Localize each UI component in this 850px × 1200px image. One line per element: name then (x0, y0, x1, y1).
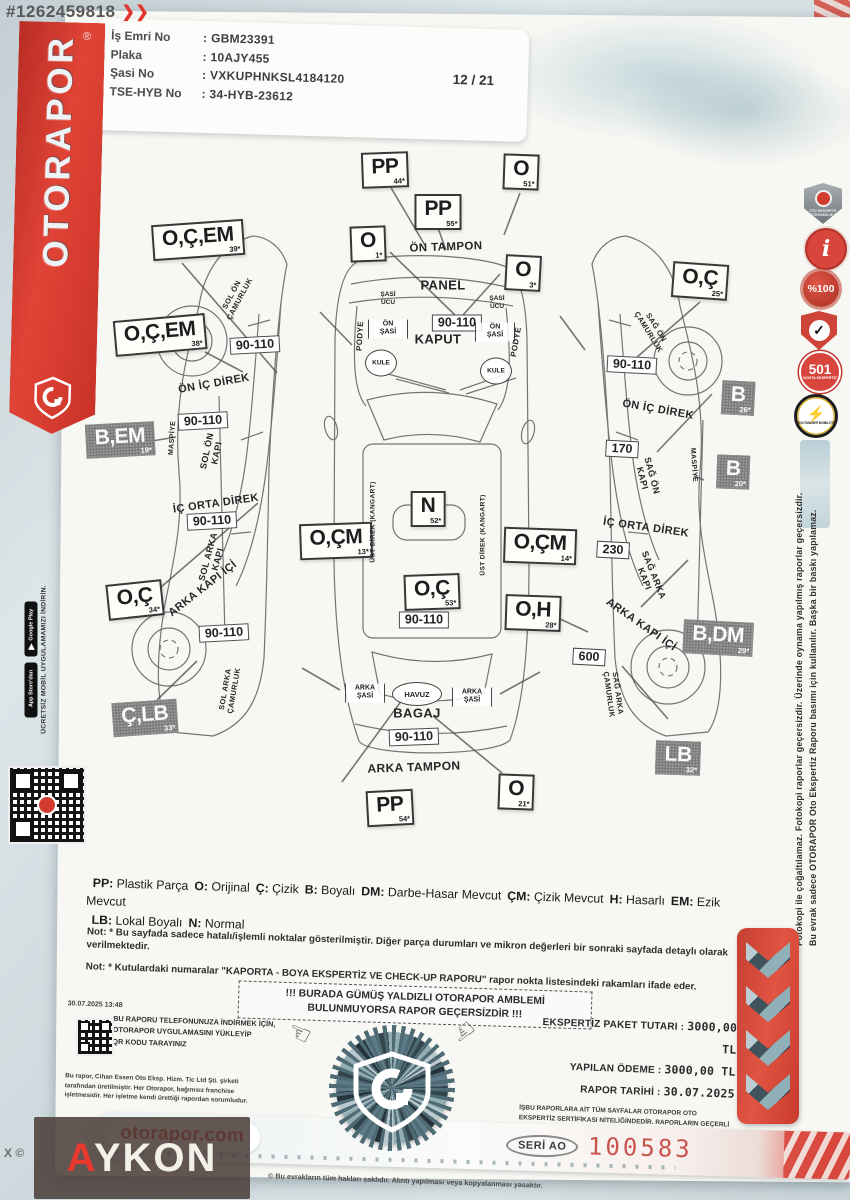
hologram-seal (336, 1032, 448, 1144)
shield-logo-icon (32, 375, 73, 420)
serial-label-stamp: SERİ AO (506, 1134, 579, 1158)
aykon-watermark: AYKON (34, 1117, 250, 1199)
brand-logo-text: OTORAPOR (36, 34, 82, 269)
side-disclaimer-line-1: Bu evrak sadece OTORAPOR Oto Ekspertiz R… (806, 398, 820, 946)
footer-red-stripes (783, 1131, 850, 1180)
download-instructions: BU RAPORU TELEFONUNUZA İNDİRMEK İÇİN,OTO… (112, 1013, 282, 1053)
page-number: 12 / 21 (453, 72, 495, 88)
payment-row: EKSPERTİZ PAKET TUTARI : 3000,00 TL (521, 1010, 737, 1061)
otorapor-logo-icon (815, 190, 832, 207)
check-icon: ✓ (809, 320, 830, 341)
side-disclaimer: Fotokopi ile çoğaltılamaz. Fotokopi rapo… (792, 398, 820, 946)
app-promo-caption: ÜCRETSİZ MOBİL UYGULAMAMIZI İNDİRİN. (41, 558, 48, 762)
lightning-icon: ⚡ (807, 407, 826, 422)
info-badge: i (805, 228, 847, 270)
voltmaner-badge: ⚡ VOLTMANER MOBILITY (794, 394, 838, 438)
chevron-ribbon (737, 928, 799, 1124)
listing-watermark-id: #1262459818❯❯ (6, 2, 149, 22)
app-store-badge: App Store'dan (25, 663, 38, 717)
mobile-app-promo: App Store'dan ▶Google Play ÜCRETSİZ MOBİ… (25, 558, 48, 762)
play-icon: ▶ (27, 644, 36, 650)
corner-copyright-mark: X © (4, 1146, 24, 1160)
501-nokta-badge: 501NOKTA EKSPERTİZ (799, 351, 841, 393)
registered-mark: ® (83, 31, 91, 43)
header-fields: İş Emri No: GBM23391Plaka: 10AJY455Şasi … (109, 26, 515, 112)
qr-logo (37, 795, 57, 815)
google-play-badge: ▶Google Play (25, 602, 38, 657)
leader-lines (152, 186, 712, 782)
serial-number: 100583 (588, 1132, 693, 1163)
scanned-report-page: #1262459818❯❯ ® OTORAPOR İş Emri No: GBM… (0, 0, 850, 1200)
chevron-down-icon (746, 1074, 790, 1110)
app-qr-code (8, 766, 86, 844)
chevrons-icon: ❯❯ (122, 4, 150, 21)
chevron-down-icon (746, 1030, 790, 1066)
side-disclaimer-line-2: Fotokopi ile çoğaltılamaz. Fotokopi rapo… (792, 398, 806, 946)
chevron-down-icon (746, 942, 790, 978)
report-qr-code (76, 1018, 114, 1056)
chevron-down-icon (746, 986, 790, 1022)
payment-rows: EKSPERTİZ PAKET TUTARI : 3000,00 TLYAPIL… (520, 1010, 738, 1105)
percent-100-badge: %100 (803, 271, 839, 307)
report-header-card: İş Emri No: GBM23391Plaka: 10AJY455Şasi … (95, 18, 530, 142)
otorapor-ribbon: ® OTORAPOR (9, 21, 106, 435)
